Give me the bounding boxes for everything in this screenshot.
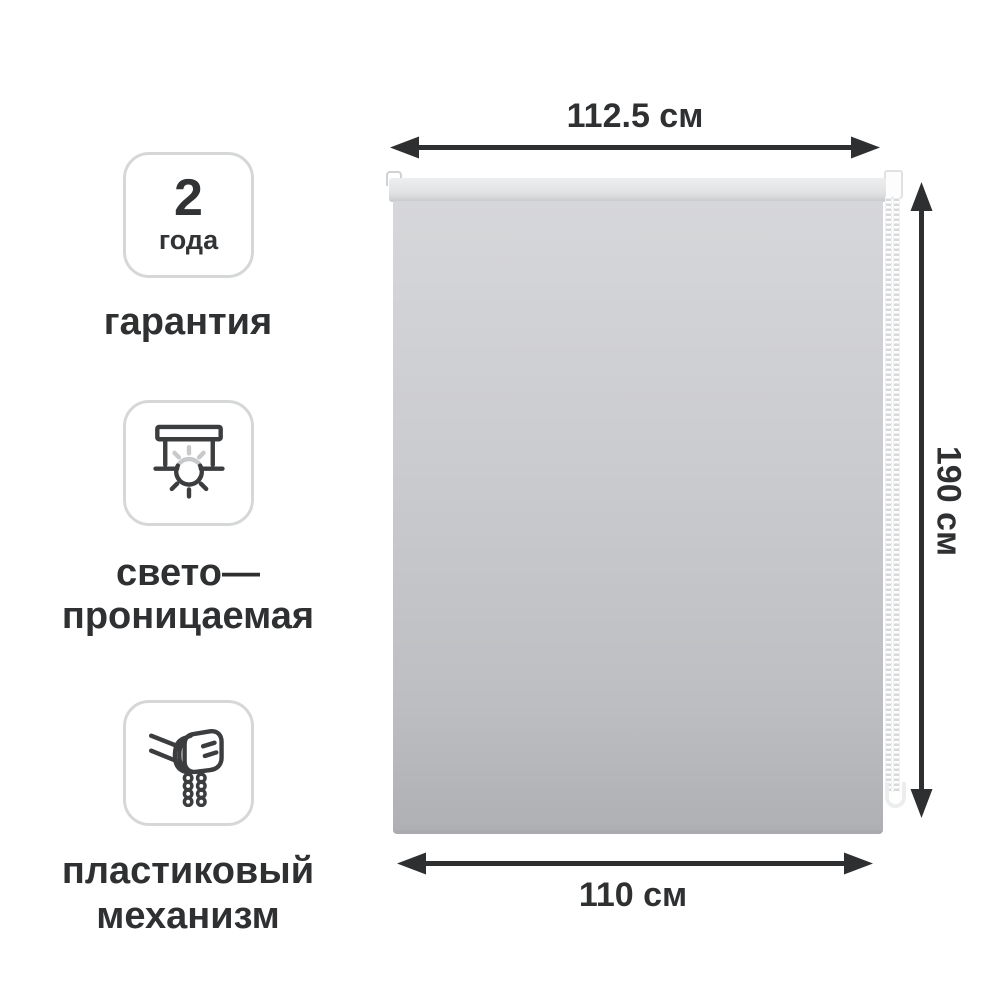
- top-width-dimension-label: 112.5 см: [430, 97, 840, 136]
- light-transmitting-label: свето— проницаемая: [0, 552, 376, 638]
- light-label-line1: свето—: [0, 552, 376, 595]
- plastic-mechanism-badge: [123, 700, 254, 826]
- plastic-chain-mechanism-icon: [145, 719, 233, 807]
- warranty-badge: 2 года: [123, 152, 254, 278]
- light-transmitting-icon: [145, 419, 233, 507]
- warranty-years-value: 2: [174, 174, 203, 223]
- blind-fabric-panel: [393, 201, 883, 834]
- chain-loop: [885, 782, 906, 808]
- bottom-width-dimension-arrow: [395, 850, 875, 877]
- top-width-dimension-arrow: [388, 134, 882, 161]
- chain-strand: [893, 196, 900, 792]
- blind-right-bracket: [884, 170, 903, 199]
- warranty-years-unit: года: [159, 225, 218, 256]
- mechanism-label-line1: пластиковый: [0, 849, 376, 894]
- light-label-line2: проницаемая: [0, 595, 376, 638]
- mechanism-label-line2: механизм: [0, 894, 376, 939]
- product-dimension-diagram: 2 года гарантия свето—: [0, 0, 1000, 1000]
- height-dimension-label: 190 см: [929, 446, 968, 556]
- light-transmitting-badge: [123, 400, 254, 526]
- bottom-width-dimension-label: 110 см: [428, 876, 838, 915]
- warranty-label: гарантия: [0, 301, 376, 344]
- plastic-mechanism-label: пластиковый механизм: [0, 849, 376, 939]
- blind-roll-tube: [389, 178, 886, 202]
- chain-strand: [885, 196, 892, 792]
